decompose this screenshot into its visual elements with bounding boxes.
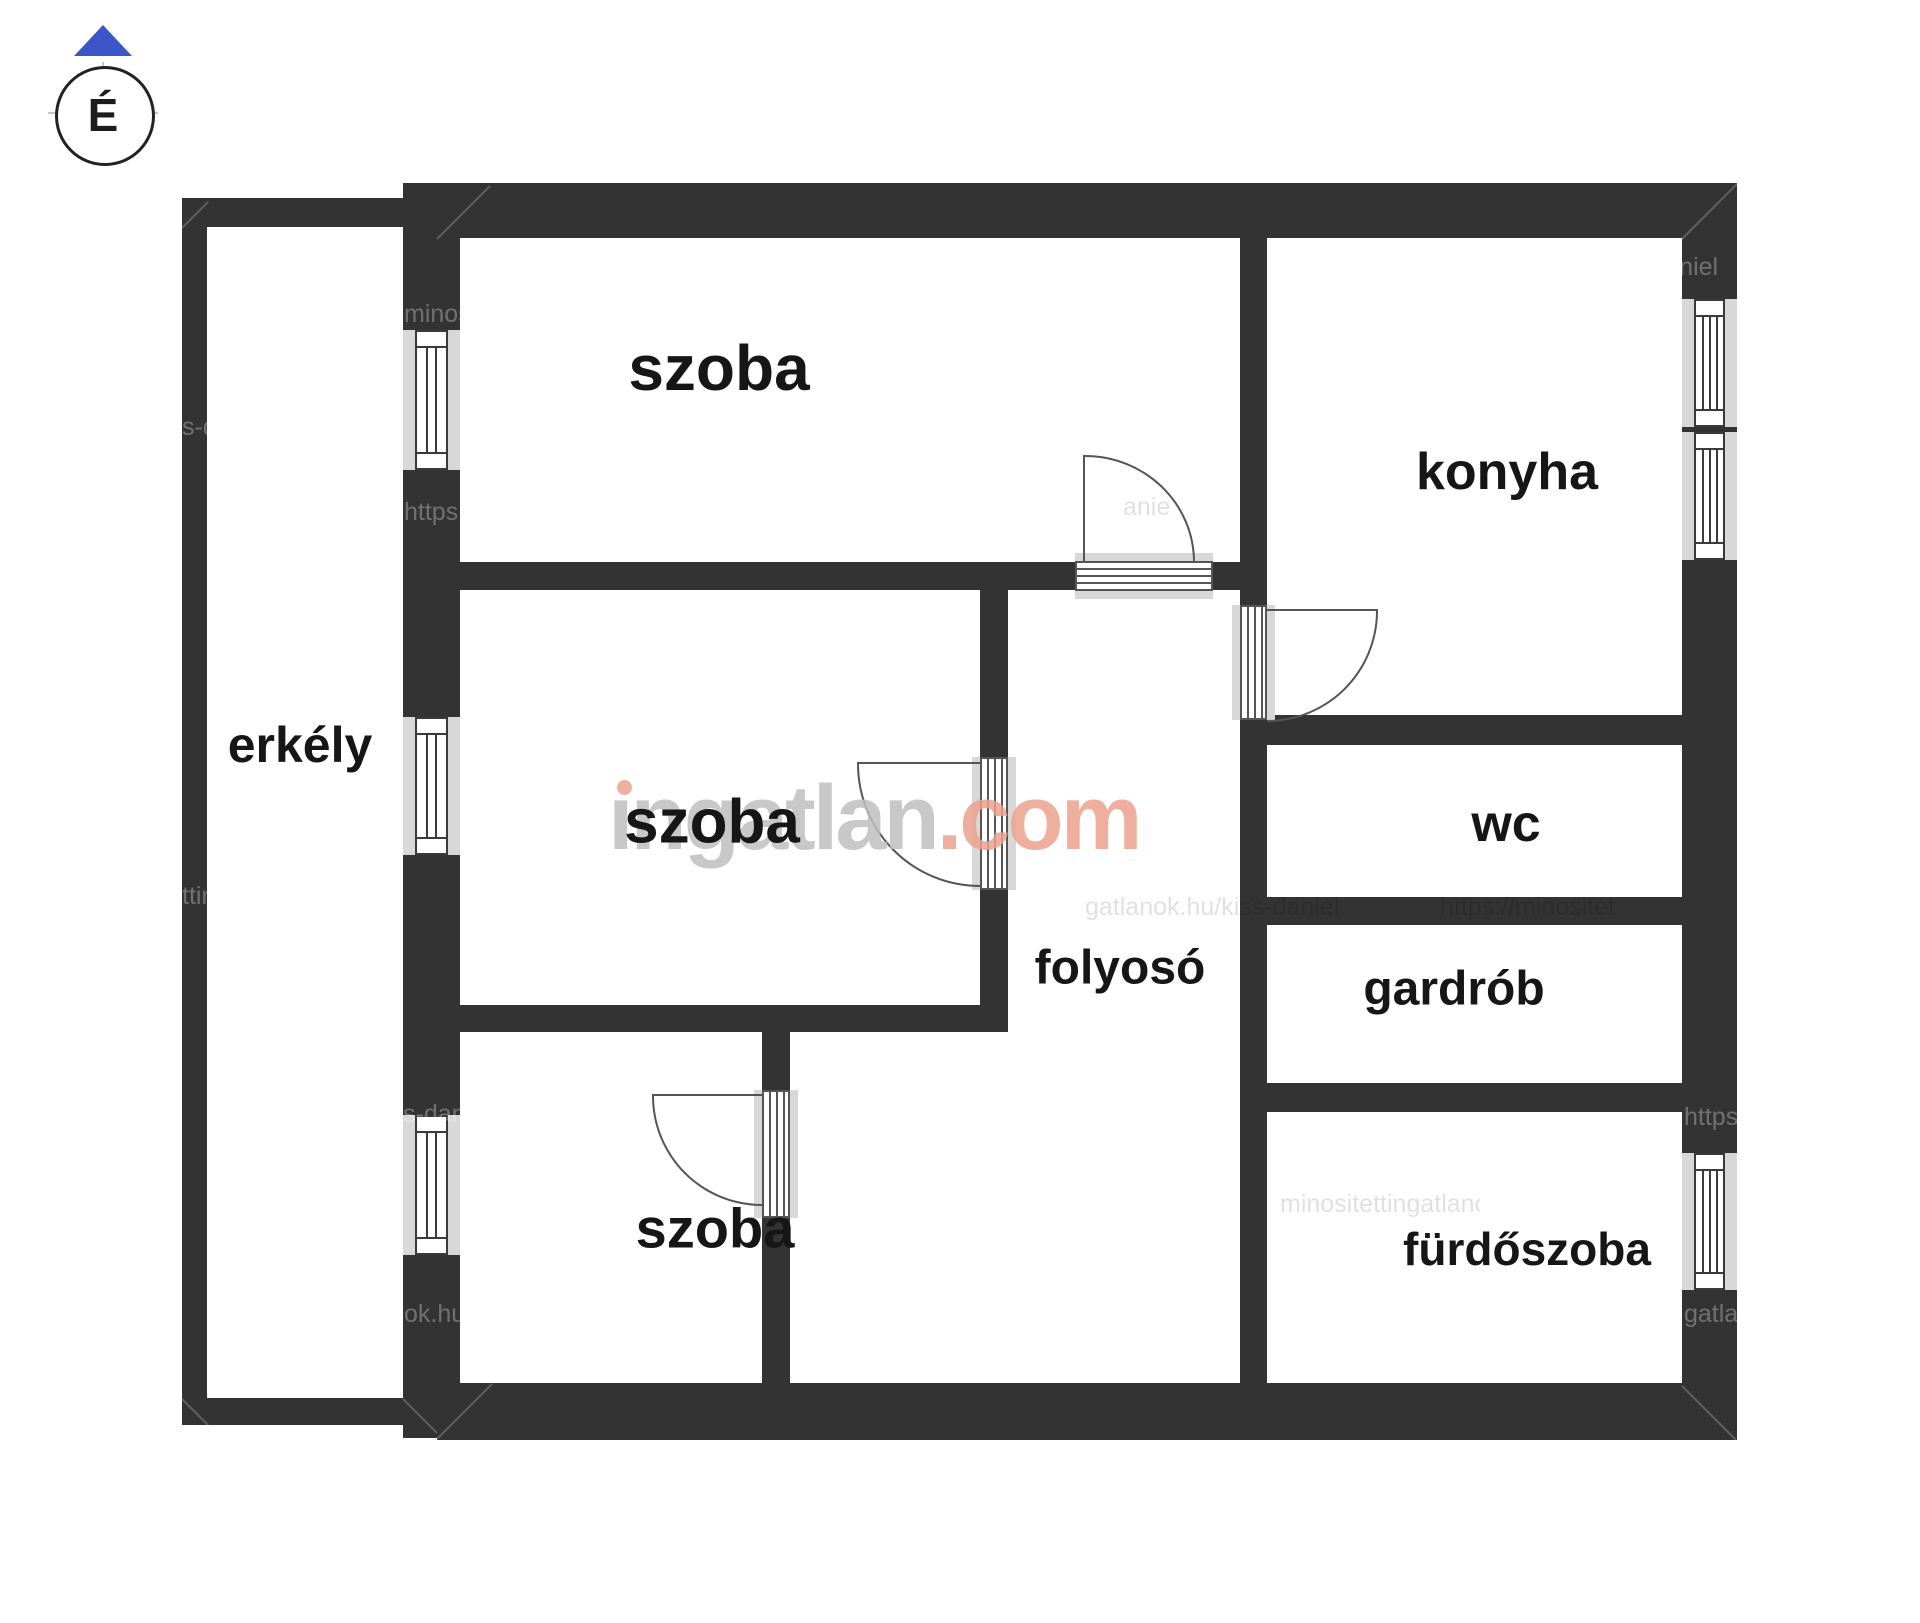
url-watermark: kiss-daniel [1600, 253, 1737, 282]
room-label-furdoszoba: fürdőszoba [1403, 1222, 1651, 1276]
room-label-szoba-bottom: szoba [636, 1196, 795, 1261]
room-label-szoba-middle: szoba [624, 787, 800, 858]
window-sill [448, 717, 460, 855]
url-watermark: tting [182, 882, 207, 911]
window-frame [415, 837, 448, 839]
window-frame [435, 1132, 437, 1238]
wall-gardrob-furdo-divider [1267, 1083, 1682, 1112]
door-opening-szoba1 [1075, 561, 1213, 591]
kitchen-window-upper-icon [1682, 299, 1737, 427]
url-watermark: ok.hu/ [404, 1300, 460, 1329]
window-frame [1709, 1170, 1711, 1273]
window-frame [1716, 449, 1718, 543]
window-pane [415, 330, 448, 470]
wall-szoba2-szoba3-divider [460, 1005, 1008, 1032]
window-frame [1702, 1170, 1704, 1273]
wall-konyha-wc-divider [1267, 715, 1682, 745]
door-opening-konyha [1240, 605, 1267, 720]
wall-corridor-left-a [980, 590, 1008, 757]
window-frame [415, 733, 448, 735]
window-frame [1716, 1170, 1718, 1273]
window-sill [1682, 432, 1694, 560]
balcony-window-top-icon [403, 330, 460, 470]
window-sill [448, 1115, 460, 1255]
url-watermark: s-danie [403, 1100, 460, 1129]
window-frame [426, 734, 428, 838]
window-frame [415, 452, 448, 454]
wall-szoba3-right-a [762, 1032, 790, 1090]
window-frame [1702, 449, 1704, 543]
room-label-wc: wc [1471, 794, 1540, 854]
wall-balcony-left [182, 198, 207, 1425]
wall-west-d [403, 1255, 460, 1438]
url-watermark: https:// [1684, 1103, 1737, 1132]
wall-right-middle [1682, 560, 1737, 1153]
url-watermark: minosit [404, 300, 460, 329]
door-jamb [1075, 591, 1213, 599]
room-label-konyha: konyha [1416, 442, 1598, 502]
window-pane [415, 1115, 448, 1255]
window-frame [426, 1132, 428, 1238]
room-label-folyoso: folyosó [1035, 941, 1206, 996]
wall-balcony-bottom [182, 1398, 438, 1425]
window-frame [435, 347, 437, 453]
url-watermark: https://minositet [1440, 893, 1682, 922]
kitchen-window-lower-icon [1682, 432, 1737, 560]
wall-top-main [437, 183, 1737, 238]
url-watermark: gatlanok.hu/kiss-daniel [1085, 893, 1385, 922]
floorplan-canvas: szoba konyha erkély szoba szoba folyosó … [0, 0, 1920, 1623]
room-label-erkely: erkély [228, 716, 373, 774]
url-watermark: minositettingatlanok.hu [1280, 1190, 1480, 1219]
window-sill [1725, 1153, 1737, 1290]
room-label-gardrob: gardrób [1363, 962, 1544, 1017]
window-frame [415, 1131, 448, 1133]
logo-accent-part: .com [937, 767, 1140, 869]
door-arc-szoba3 [652, 1096, 762, 1206]
wall-szoba1-bottom [460, 562, 1075, 590]
compass-north-letter: É [88, 88, 119, 142]
bathroom-window-icon [1682, 1153, 1737, 1290]
window-frame [435, 734, 437, 838]
window-frame [415, 346, 448, 348]
window-pane [415, 717, 448, 855]
window-frame [1716, 316, 1718, 410]
balcony-window-bottom-icon [403, 1115, 460, 1255]
window-frame [415, 1237, 448, 1239]
window-sill [448, 330, 460, 470]
door-arc-konyha [1267, 611, 1378, 722]
window-frame [1702, 316, 1704, 410]
window-frame [1709, 449, 1711, 543]
wall-corridor-right [1240, 720, 1267, 1383]
room-label-szoba-top: szoba [628, 331, 809, 405]
url-watermark: https: [404, 498, 460, 527]
window-sill [403, 717, 415, 855]
window-sill [1682, 299, 1694, 427]
url-watermark: gatlano [1684, 1300, 1737, 1329]
door-jamb [1232, 605, 1240, 720]
window-sill [1725, 432, 1737, 560]
window-frame [426, 347, 428, 453]
north-arrow-icon [74, 25, 132, 56]
wall-konyha-divider [1240, 238, 1267, 605]
wall-west-c [403, 855, 460, 1115]
window-sill [403, 1115, 415, 1255]
window-sill [403, 330, 415, 470]
window-sill [1725, 299, 1737, 427]
url-watermark: anie [1123, 493, 1183, 522]
balcony-window-middle-icon [403, 717, 460, 855]
url-watermark: s-da [182, 413, 207, 442]
window-sill [1682, 1153, 1694, 1290]
wall-bottom-main [437, 1383, 1737, 1440]
window-frame [1709, 316, 1711, 410]
